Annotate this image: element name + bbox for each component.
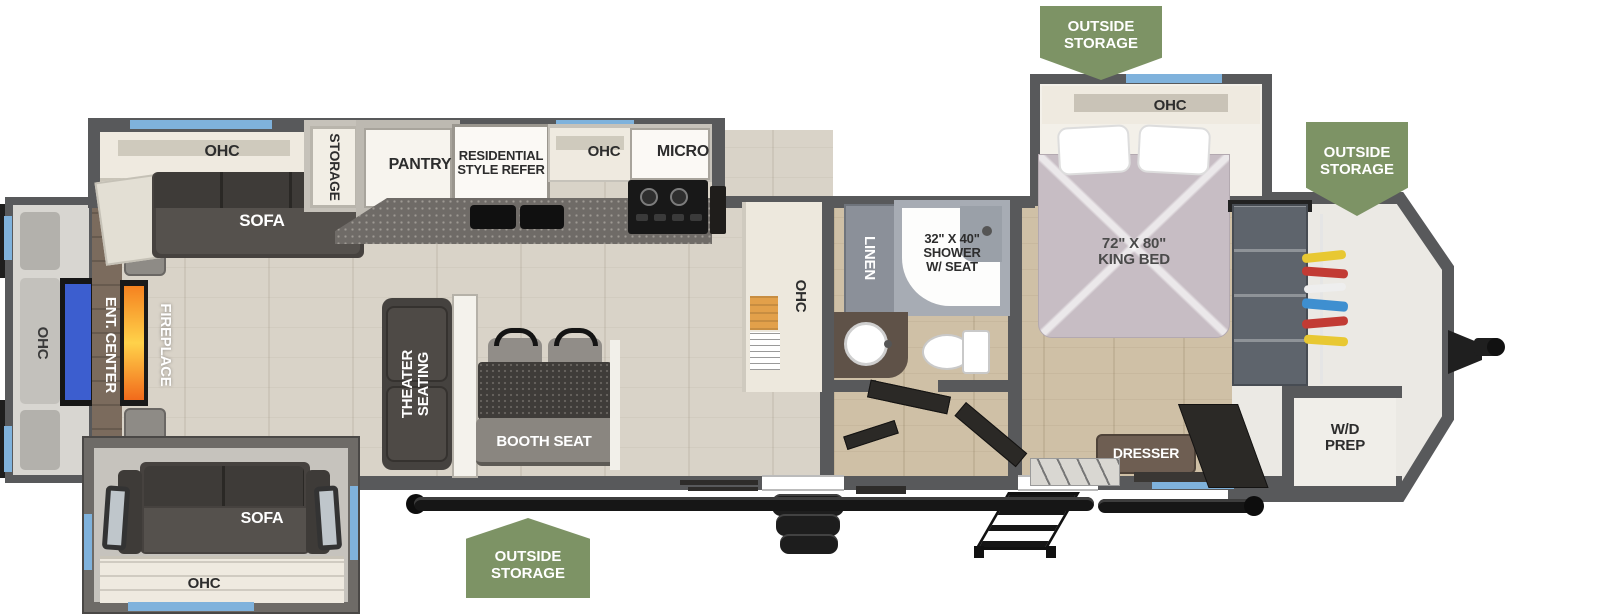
window-strip — [1126, 74, 1222, 83]
bedroom-ohc-label: OHC — [1140, 95, 1200, 117]
pillow — [1057, 124, 1131, 176]
stove-knob — [640, 188, 658, 206]
window-strip — [128, 602, 254, 611]
fireplace-flame — [124, 286, 144, 400]
bottom-ohc-label: OHC — [172, 574, 236, 594]
king-bed-label: 72" X 80" KING BED — [1082, 232, 1186, 272]
bottom-sofa-label: SOFA — [218, 509, 306, 529]
hitch-ball — [1487, 338, 1505, 356]
kitchen-ohc-label: OHC — [578, 141, 630, 163]
linen-label: LINEN — [861, 218, 877, 298]
threshold-bar — [680, 480, 758, 485]
step-foot — [974, 546, 984, 558]
wd-room-left-wall — [1282, 386, 1294, 490]
awning-rail — [414, 497, 1094, 511]
entry-door-opening — [762, 475, 844, 491]
wd-prep-label: W/D PREP — [1300, 416, 1390, 460]
sofa-label: SOFA — [218, 210, 306, 232]
burner — [690, 214, 702, 221]
refrigerator-label: RESIDENTIAL STYLE REFER — [452, 143, 550, 183]
dresser-label: DRESSER — [1100, 444, 1192, 464]
toilet-tank — [962, 330, 990, 374]
bath-bottom-wall — [938, 380, 1012, 392]
step-foot — [1046, 546, 1056, 558]
window-strip — [4, 216, 12, 260]
hutch-drawers — [750, 332, 780, 370]
booth-table — [478, 362, 612, 420]
wardrobe — [1232, 204, 1308, 386]
half-wall-partition — [452, 294, 478, 478]
hutch-wood-insert — [750, 296, 778, 330]
tv-screen — [65, 284, 91, 400]
window-strip — [350, 486, 358, 560]
bath-sink — [844, 322, 888, 366]
shower-label: 32" X 40" SHOWER W/ SEAT — [912, 224, 992, 282]
fireplace-label: FIREPLACE — [157, 280, 173, 410]
floorplan-diagram: OHC SOFA STORAGE PANTRY RESIDENTIAL STYL… — [0, 0, 1600, 616]
burner — [654, 214, 666, 221]
rear-ohc-label: OHC — [33, 308, 51, 378]
wd-room-top-wall — [1282, 386, 1402, 398]
pillow — [1137, 124, 1211, 176]
sink-faucet — [884, 340, 892, 348]
window-strip — [84, 514, 92, 570]
window-strip — [130, 120, 272, 129]
bottom-sofa-back — [144, 466, 304, 506]
awning-rail-cap — [1244, 496, 1264, 516]
booth-seat-label: BOOTH SEAT — [484, 432, 604, 452]
awning-rail — [1098, 499, 1262, 513]
stove-knob — [670, 188, 688, 206]
ohc-label: OHC — [182, 141, 262, 163]
theater-seating-label: THEATER SEATING — [399, 309, 433, 459]
booth-end-panel — [610, 340, 620, 470]
kitchen-sink — [470, 205, 516, 229]
kitchen-sink — [520, 205, 564, 229]
counter-end-panel — [710, 186, 726, 234]
slide-window — [102, 485, 130, 551]
cooktop-stove — [628, 180, 708, 234]
ent-center-label: ENT. CENTER — [101, 270, 119, 420]
slide-window — [314, 485, 342, 551]
window-strip — [4, 426, 12, 472]
threshold-bar — [856, 486, 906, 494]
outside-storage-badge-top: OUTSIDE STORAGE — [1040, 6, 1162, 80]
entry-step — [780, 534, 838, 554]
outside-storage-badge-bottom: OUTSIDE STORAGE — [466, 518, 590, 598]
rear-cabinet-panel — [20, 212, 60, 270]
bath-left-wall — [820, 196, 834, 490]
threshold-bar — [688, 487, 758, 491]
storage-label: STORAGE — [326, 122, 342, 212]
rear-cabinet-panel — [20, 410, 60, 470]
hutch-ohc-label: OHC — [792, 261, 808, 331]
burner — [672, 214, 684, 221]
entry-step — [776, 514, 840, 536]
micro-label: MICRO — [644, 141, 722, 163]
burner — [636, 214, 648, 221]
